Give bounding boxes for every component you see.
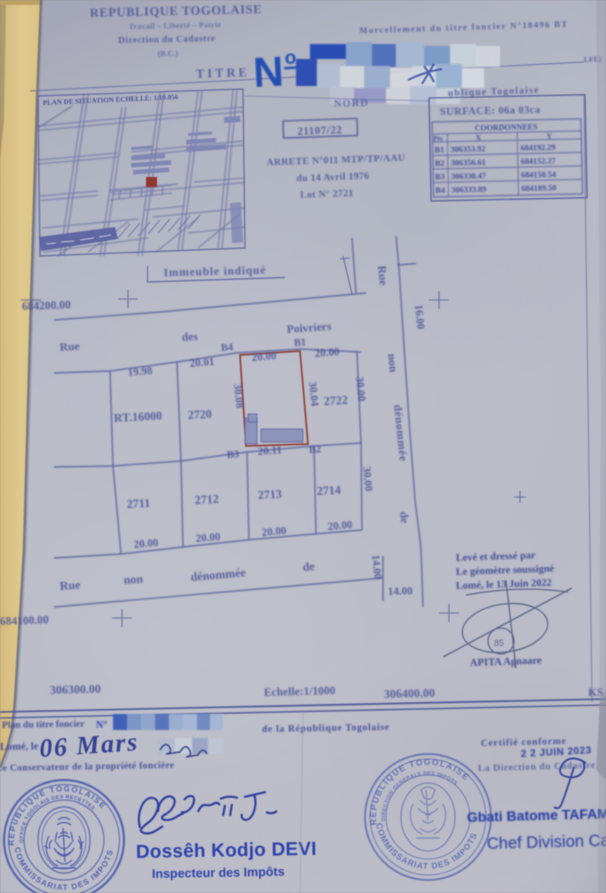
svg-text:COORDONNEES: COORDONNEES <box>475 122 538 132</box>
svg-text:Plan du titre foncier: Plan du titre foncier <box>2 719 86 731</box>
svg-text:306400.00: 306400.00 <box>384 686 435 701</box>
svg-text:20.00: 20.00 <box>195 531 221 545</box>
svg-text:non: non <box>123 572 144 587</box>
svg-text:Y: Y <box>547 131 553 140</box>
svg-text:des: des <box>181 331 198 344</box>
svg-text:Lomé, le: Lomé, le <box>0 741 39 753</box>
svg-text:20.00: 20.00 <box>314 346 340 360</box>
svg-text:Rue: Rue <box>59 578 81 593</box>
svg-text:Rue: Rue <box>59 341 80 354</box>
svg-text:306333.89: 306333.89 <box>451 185 486 195</box>
svg-text:684200.00: 684200.00 <box>22 299 72 313</box>
svg-text:684189.50: 684189.50 <box>521 183 556 193</box>
svg-text:SURFACE: 06a 03ca: SURFACE: 06a 03ca <box>440 105 541 118</box>
svg-text:Direction du Cadastre: Direction du Cadastre <box>118 33 216 45</box>
svg-text:2713: 2713 <box>257 487 282 502</box>
svg-text:N: N <box>252 47 285 96</box>
svg-text:Pts: Pts <box>433 135 443 143</box>
svg-text:(B.C.): (B.C.) <box>158 49 179 58</box>
svg-text:20.00: 20.00 <box>251 350 277 364</box>
svg-text:B3: B3 <box>227 449 240 461</box>
svg-text:de la République Togolaise: de la République Togolaise <box>262 722 390 735</box>
svg-text:684152.27: 684152.27 <box>521 156 556 166</box>
svg-text:B2: B2 <box>435 159 445 168</box>
svg-text:20.00: 20.00 <box>327 519 353 533</box>
svg-text:306338.47: 306338.47 <box>451 171 486 181</box>
svg-text:684100.00: 684100.00 <box>0 614 49 628</box>
svg-text:B1: B1 <box>434 145 444 154</box>
svg-text:306300.00: 306300.00 <box>50 682 101 697</box>
svg-text:B2: B2 <box>309 444 322 456</box>
svg-text:B3: B3 <box>435 172 445 181</box>
svg-text:20.00: 20.00 <box>133 537 159 551</box>
svg-text:B4: B4 <box>435 186 445 195</box>
svg-text:14.00: 14.00 <box>388 585 414 598</box>
svg-text:RT.16000: RT.16000 <box>113 408 162 425</box>
svg-text:B1: B1 <box>294 337 307 349</box>
svg-text:19.98: 19.98 <box>127 365 153 379</box>
svg-text:2712: 2712 <box>194 492 219 507</box>
svg-text:2722: 2722 <box>323 393 348 408</box>
svg-text:Echelle:1/1000: Echelle:1/1000 <box>264 685 336 699</box>
svg-text:85: 85 <box>494 638 504 648</box>
svg-text:non: non <box>385 353 399 373</box>
svg-text:o: o <box>284 47 297 69</box>
svg-text:20.00: 20.00 <box>261 525 287 539</box>
svg-text:684150.54: 684150.54 <box>521 170 556 180</box>
svg-text:306353.92: 306353.92 <box>450 144 485 154</box>
svg-text:20.01: 20.01 <box>189 356 215 370</box>
svg-text:TITRE: TITRE <box>196 65 250 81</box>
svg-text:B4: B4 <box>221 342 235 354</box>
svg-text:21107/22: 21107/22 <box>297 124 342 138</box>
svg-text:2720: 2720 <box>187 407 212 422</box>
svg-text:684192.29: 684192.29 <box>520 143 555 153</box>
svg-text:2714: 2714 <box>316 483 341 498</box>
svg-text:de: de <box>302 559 316 574</box>
svg-text:20.11: 20.11 <box>257 444 282 458</box>
svg-text:Lot N° 2721: Lot N° 2721 <box>300 188 354 201</box>
svg-text:de: de <box>397 511 410 524</box>
svg-text:Rue: Rue <box>375 265 389 286</box>
svg-text:X: X <box>476 133 482 142</box>
svg-text:Chef Division Cada: Chef Division Cada <box>487 831 606 853</box>
svg-text:Dossêh Kodjo DEVI: Dossêh Kodjo DEVI <box>136 839 317 863</box>
svg-text:Inspecteur des Impôts: Inspecteur des Impôts <box>152 865 285 881</box>
svg-text:306356.61: 306356.61 <box>451 158 486 168</box>
svg-text:2711: 2711 <box>126 496 150 511</box>
